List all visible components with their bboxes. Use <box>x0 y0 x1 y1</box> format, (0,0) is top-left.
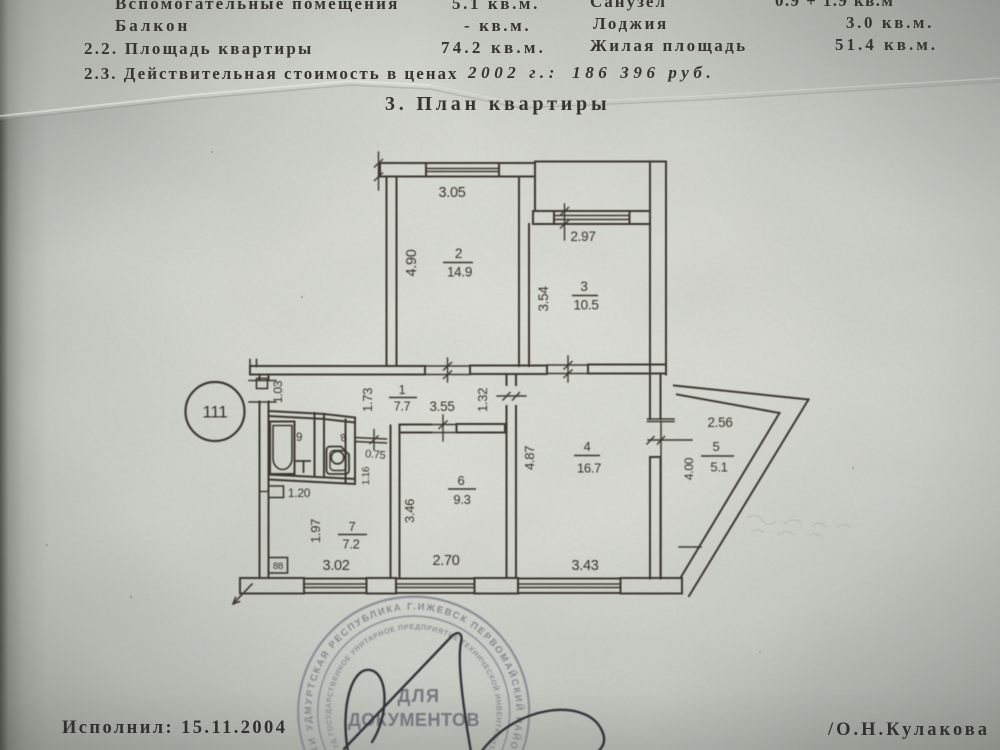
svg-text:2.70: 2.70 <box>432 553 459 569</box>
svg-text:16.7: 16.7 <box>577 461 601 476</box>
svg-text:14.9: 14.9 <box>447 265 472 280</box>
svg-text:3.46: 3.46 <box>402 499 417 523</box>
svg-text:2: 2 <box>455 246 462 261</box>
svg-text:51.4 кв.м.: 51.4 кв.м. <box>835 35 938 54</box>
svg-text:4.00: 4.00 <box>682 457 696 480</box>
svg-text:3.05: 3.05 <box>438 185 465 201</box>
svg-text:7: 7 <box>349 519 356 534</box>
svg-text:0.75: 0.75 <box>365 448 386 462</box>
svg-text:1.97: 1.97 <box>308 519 323 543</box>
svg-text:1.03: 1.03 <box>271 380 285 403</box>
svg-text:Балкон: Балкон <box>115 16 190 35</box>
svg-text:2.56: 2.56 <box>707 415 732 430</box>
svg-text:4.87: 4.87 <box>522 446 537 470</box>
svg-text:0.9 + 1.9 кв.м: 0.9 + 1.9 кв.м <box>775 0 894 10</box>
svg-text:2.2. Площадь квартиры: 2.2. Площадь квартиры <box>84 39 313 58</box>
svg-text:Санузел: Санузел <box>590 0 667 11</box>
svg-text:111: 111 <box>203 403 228 422</box>
svg-text:7.7: 7.7 <box>394 400 411 414</box>
svg-text:74.2 кв.м.: 74.2 кв.м. <box>441 38 546 57</box>
svg-text:6: 6 <box>458 473 465 488</box>
svg-text:2.3. Действительная стоимость: 2.3. Действительная стоимость в ценах <box>84 64 459 83</box>
svg-text:5: 5 <box>713 439 720 454</box>
svg-text:1.16: 1.16 <box>361 466 372 485</box>
svg-text:5.1: 5.1 <box>710 460 727 475</box>
svg-text:5.1 кв.м.: 5.1 кв.м. <box>452 0 540 13</box>
svg-text:9.3: 9.3 <box>453 492 470 507</box>
svg-text:1.20: 1.20 <box>288 486 311 500</box>
svg-text:1.32: 1.32 <box>475 388 490 412</box>
svg-text:1.73: 1.73 <box>360 388 375 412</box>
svg-text:88: 88 <box>273 561 283 572</box>
svg-text:3.54: 3.54 <box>536 286 551 312</box>
svg-text:3.43: 3.43 <box>571 558 598 574</box>
svg-text:2.97: 2.97 <box>570 229 595 244</box>
svg-text:3. План квартиры: 3. План квартиры <box>385 93 610 115</box>
svg-text:10.5: 10.5 <box>573 298 598 313</box>
svg-text:7.2: 7.2 <box>342 537 359 552</box>
svg-text:3.55: 3.55 <box>429 399 454 414</box>
svg-text:1: 1 <box>399 383 406 397</box>
svg-text:3.0 кв.м.: 3.0 кв.м. <box>846 13 934 32</box>
svg-text:Исполнил: 15.11.2004: Исполнил: 15.11.2004 <box>62 718 287 738</box>
svg-text:Жилая площадь: Жилая площадь <box>590 36 748 55</box>
svg-text:4: 4 <box>584 439 591 454</box>
svg-text:Вспомогательные помещения: Вспомогательные помещения <box>115 0 400 13</box>
svg-text:2002 г.: 186 396 руб.: 2002 г.: 186 396 руб. <box>467 63 715 82</box>
svg-text:- кв.м.: - кв.м. <box>464 16 531 35</box>
svg-text:3: 3 <box>580 279 587 294</box>
svg-text:/О.Н.Кулакова: /О.Н.Кулакова <box>827 720 990 740</box>
svg-text:3.02: 3.02 <box>322 558 349 574</box>
svg-text:4.90: 4.90 <box>404 249 420 276</box>
svg-text:ДОКУМЕНТОВ: ДОКУМЕНТОВ <box>348 710 480 730</box>
svg-text:Лоджия: Лоджия <box>593 14 669 33</box>
svg-text:ДЛЯ: ДЛЯ <box>398 686 441 706</box>
svg-text:9: 9 <box>296 432 302 444</box>
